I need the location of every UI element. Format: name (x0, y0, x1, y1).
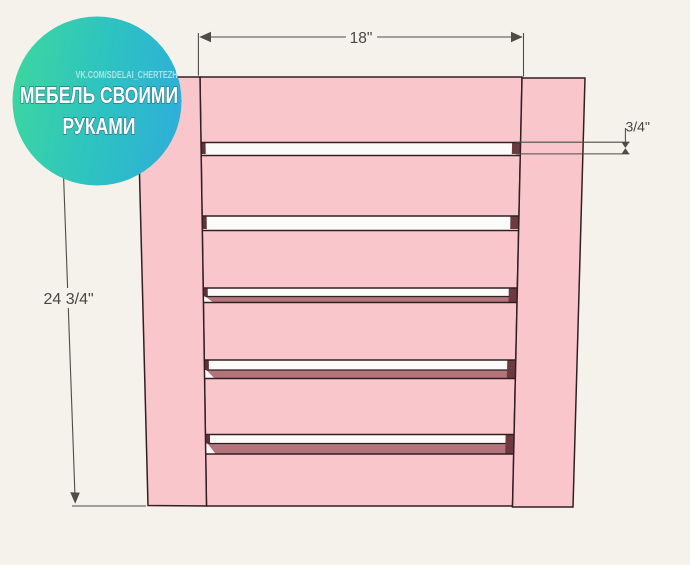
svg-text:3/4": 3/4" (626, 119, 650, 135)
svg-text:VK.COM/SDELAI_CHERTEZH: VK.COM/SDELAI_CHERTEZH (76, 70, 178, 81)
svg-text:МЕБЕЛЬ СВОИМИ: МЕБЕЛЬ СВОИМИ (20, 82, 178, 108)
svg-text:18": 18" (350, 30, 373, 47)
svg-text:РУКАМИ: РУКАМИ (63, 113, 136, 139)
svg-text:24 3/4": 24 3/4" (44, 291, 94, 308)
